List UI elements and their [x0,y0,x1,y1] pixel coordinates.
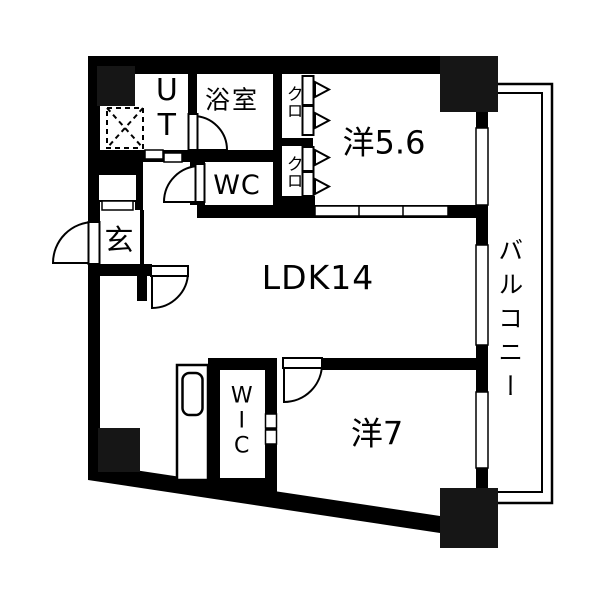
wall-bath-closet-divider [273,74,282,205]
closet-upper-label: クロ [283,85,300,119]
closet-bifold-doors [303,76,330,196]
bedroom2-label: 洋7 [351,418,403,451]
windows [476,128,488,468]
wic-label: WIC [230,384,252,459]
bedroom1-label: 洋5.6 [343,127,426,160]
wall-right-3 [476,345,488,392]
bathroom-label: 浴室 [205,87,259,113]
window-bedroom1 [476,128,488,205]
pillar-bottom-left [98,428,140,472]
bifold-arrow-icon [315,150,329,165]
window-bedroom2 [476,392,488,468]
wall-closet-divider [282,138,313,146]
kitchen-counter [177,365,208,480]
wall-bedroom2-north-right [322,358,477,370]
entrance-door [53,222,100,264]
wc-door [164,164,205,202]
entrance-step [98,174,137,210]
wall-top [88,56,498,74]
kitchen-sink [183,373,203,415]
balcony-label: バルコニー [496,237,522,407]
bifold-arrow-icon [315,179,329,194]
ldk-label: LDK14 [262,261,374,295]
closet-lower-label: クロ [283,155,300,189]
wall-bottom-diagonal [88,463,440,533]
utility-label: UT [151,73,182,143]
pillar-top-left [97,66,135,106]
bifold-arrow-icon [315,113,329,128]
pillar-top-right [440,56,498,112]
bathroom-door [189,114,228,150]
wall-entrance-frame [140,210,144,265]
wall-wic-left [208,358,220,497]
toilet-label: WC [213,172,261,200]
pipe-space-box [107,108,143,148]
bifold-arrow-icon [315,82,329,97]
bedroom2-door [283,358,322,402]
pillar-bottom-right [440,488,498,548]
window-ldk [476,245,488,345]
wall-right-2 [476,205,488,245]
wall-entrance-top [88,162,143,174]
floor-plan: UT 浴室 クロ クロ 洋5.6 WC 玄 LDK14 WIC 洋7 バルコニー [0,0,600,600]
wall-stub-below-entrance [137,276,147,301]
entrance-label: 玄 [104,226,133,256]
sliding-door-bedroom1 [315,206,448,216]
wall-under-ut-bath [100,150,282,162]
wall-entrance-bottom [88,264,152,276]
ldk-door [151,266,188,308]
